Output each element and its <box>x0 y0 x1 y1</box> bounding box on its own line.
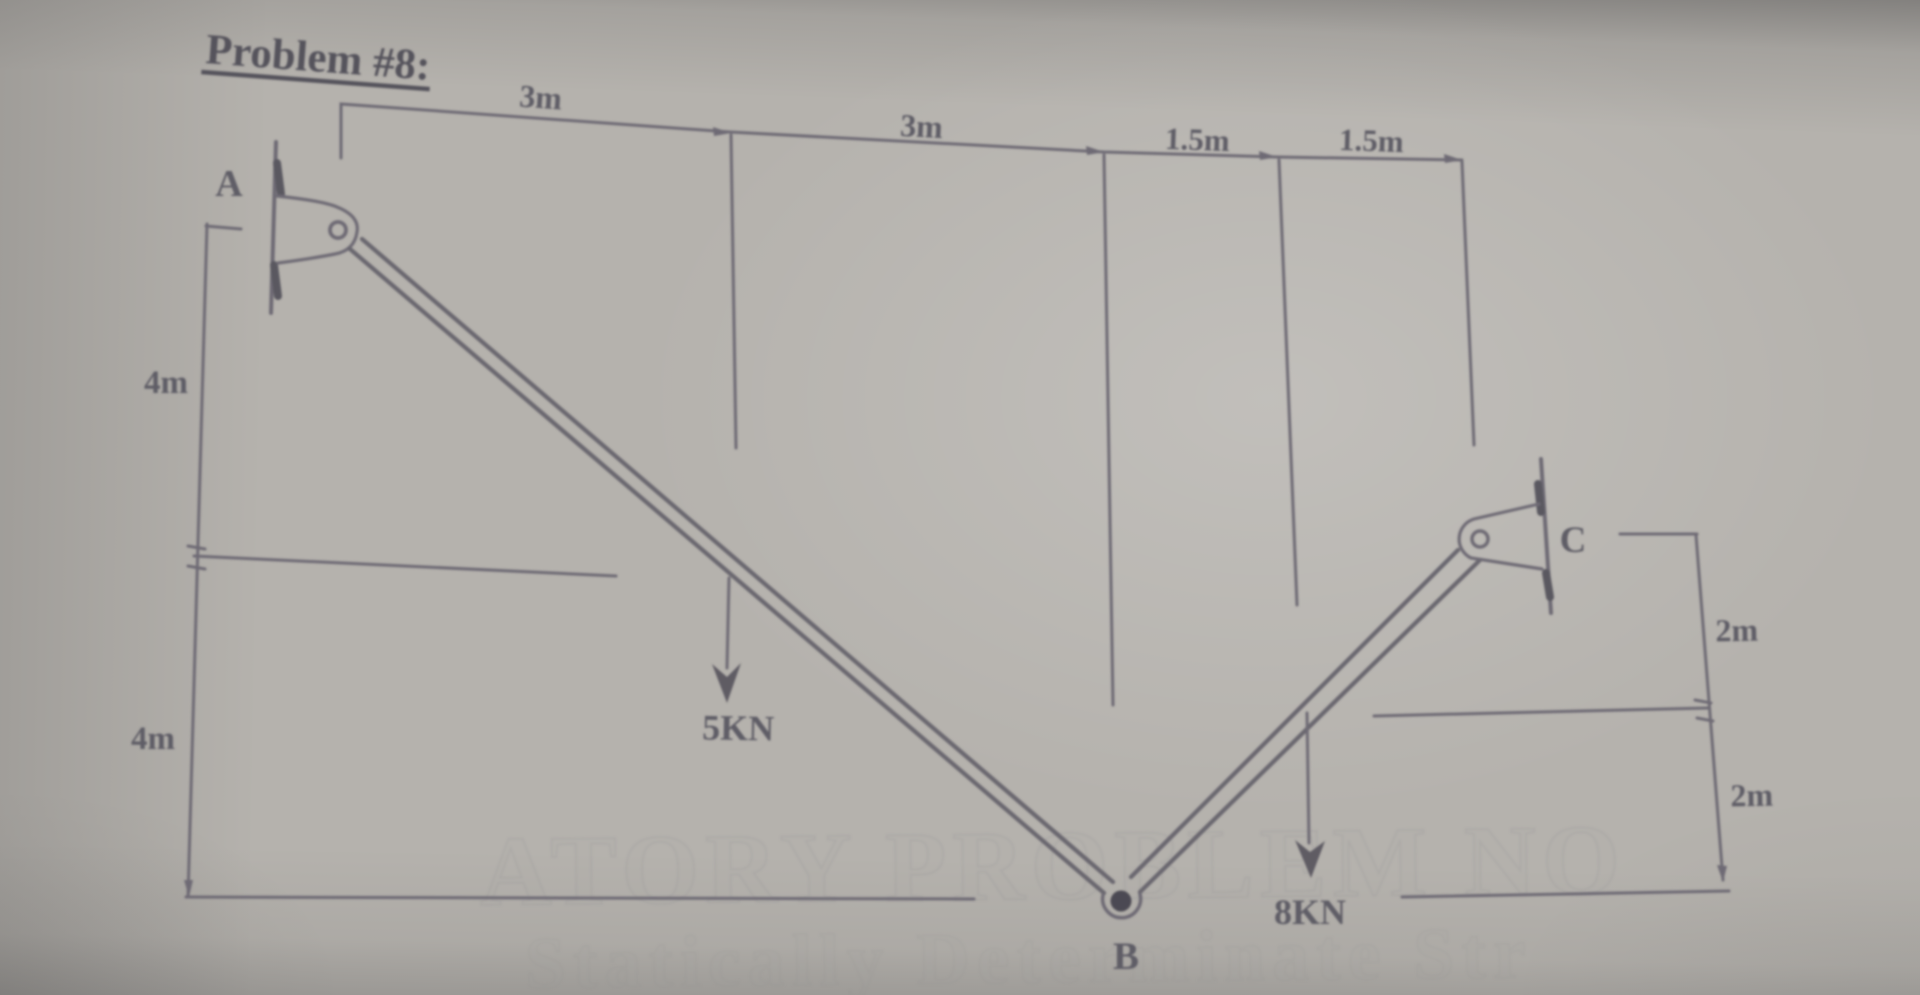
svg-text:B: B <box>1113 935 1139 978</box>
svg-text:5KN: 5KN <box>702 707 775 748</box>
svg-text:2m: 2m <box>1715 612 1759 649</box>
svg-text:4m: 4m <box>131 721 175 757</box>
svg-text:2m: 2m <box>1730 777 1774 814</box>
svg-text:3m: 3m <box>518 78 563 117</box>
svg-text:ATORY PROBLEM NO: ATORY PROBLEM NO <box>479 804 1626 927</box>
svg-text:8KN: 8KN <box>1274 892 1346 932</box>
svg-text:1.5m: 1.5m <box>1164 121 1230 158</box>
svg-text:3m: 3m <box>899 107 944 145</box>
svg-text:C: C <box>1560 520 1587 561</box>
svg-text:A: A <box>215 163 243 205</box>
svg-text:4m: 4m <box>144 365 188 401</box>
svg-text:1.5m: 1.5m <box>1338 122 1404 159</box>
svg-text:Statically Determinate Str: Statically Determinate Str <box>524 912 1533 995</box>
